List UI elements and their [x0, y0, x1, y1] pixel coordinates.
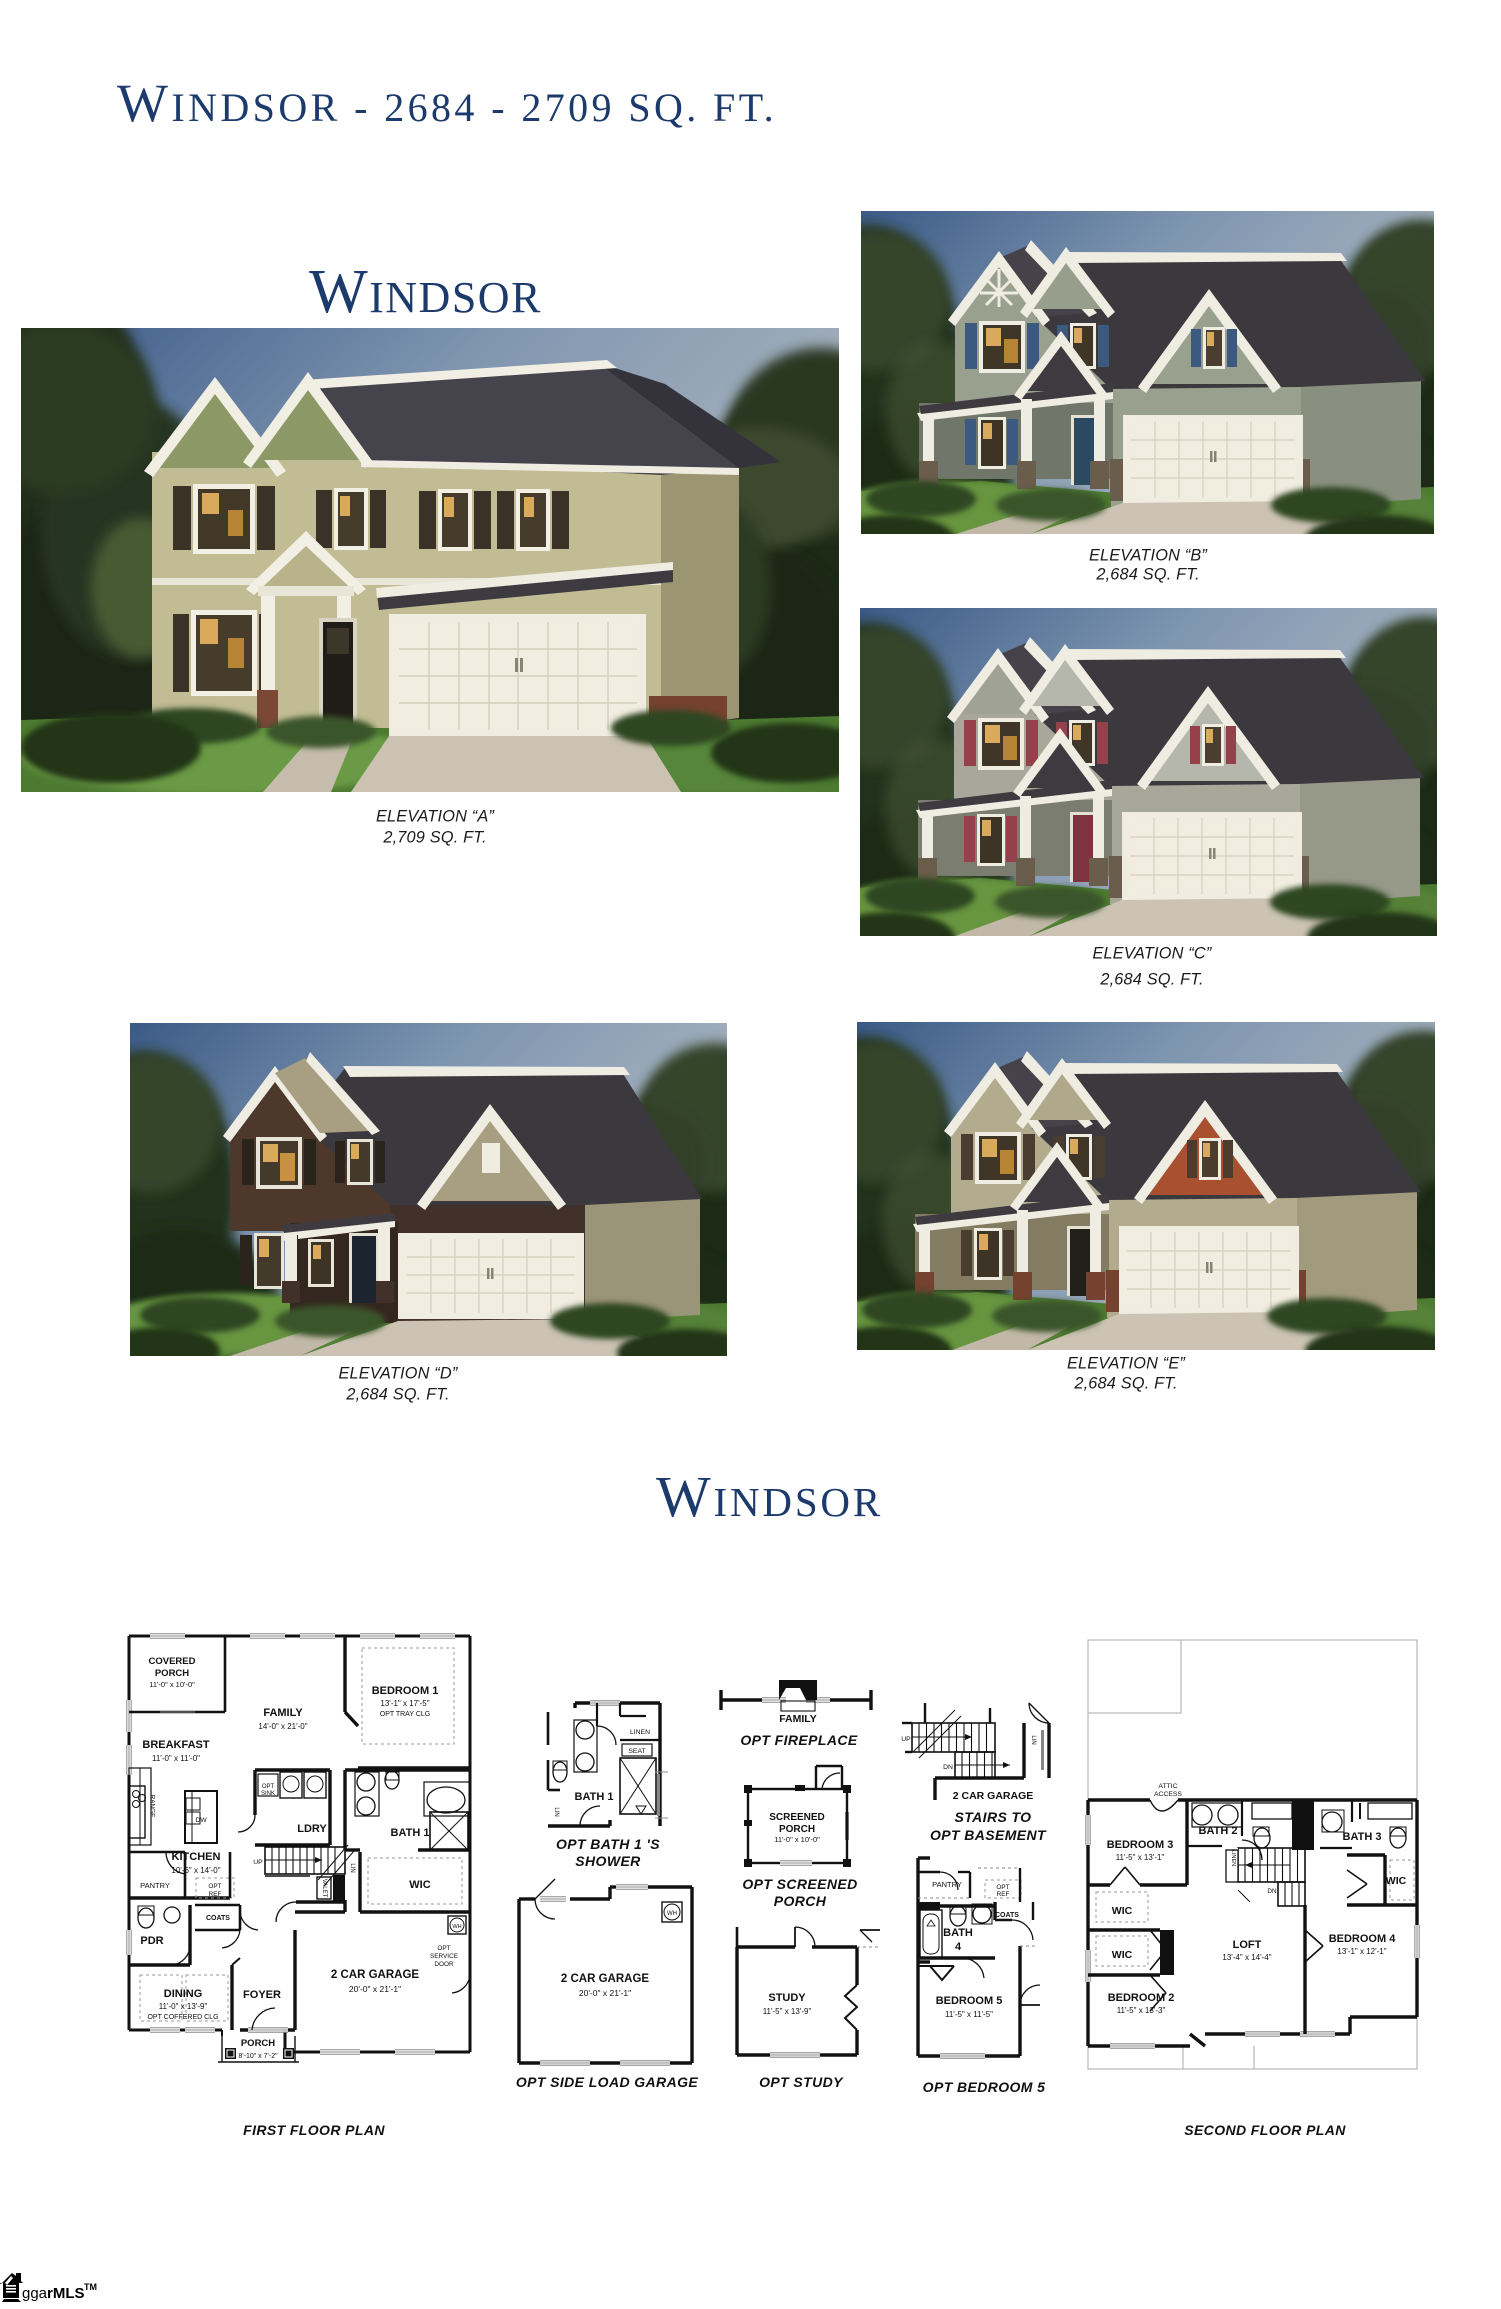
svg-text:OPT SIDE LOAD GARAGE: OPT SIDE LOAD GARAGE: [516, 2074, 698, 2090]
svg-text:LOFT: LOFT: [1233, 1939, 1262, 1951]
svg-text:LIN: LIN: [1030, 1735, 1036, 1744]
svg-text:COATS: COATS: [995, 1912, 1019, 1919]
svg-text:UP: UP: [253, 1859, 263, 1866]
svg-text:WIC: WIC: [1112, 1905, 1133, 1917]
svg-text:BATH: BATH: [943, 1927, 973, 1939]
svg-text:BEDROOM 4: BEDROOM 4: [1329, 1933, 1397, 1945]
svg-text:13'-1" x 17'-5": 13'-1" x 17'-5": [380, 1699, 429, 1708]
svg-text:2 CAR GARAGE: 2 CAR GARAGE: [331, 1969, 420, 1981]
svg-text:ACCESS: ACCESS: [1154, 1791, 1182, 1798]
svg-text:LINEN: LINEN: [630, 1729, 650, 1736]
svg-text:FAMILY: FAMILY: [263, 1707, 303, 1719]
svg-text:FIRST FLOOR PLAN: FIRST FLOOR PLAN: [243, 2122, 385, 2138]
svg-text:OPT: OPT: [996, 1884, 1009, 1891]
svg-text:13'-4" x 14'-4": 13'-4" x 14'-4": [1222, 1953, 1271, 1962]
svg-text:BEDROOM 1: BEDROOM 1: [372, 1685, 439, 1697]
svg-text:BEDROOM 2: BEDROOM 2: [1108, 1992, 1175, 2004]
svg-text:11'-0" x 13'-9": 11'-0" x 13'-9": [159, 2002, 208, 2011]
svg-text:UP: UP: [901, 1736, 911, 1743]
svg-text:BATH 3: BATH 3: [1343, 1831, 1382, 1843]
svg-text:OPT SCREENED: OPT SCREENED: [742, 1876, 857, 1892]
svg-text:13'-1" x 12'-1": 13'-1" x 12'-1": [1337, 1947, 1386, 1956]
svg-text:SEAT: SEAT: [628, 1748, 645, 1755]
svg-text:STAIRS TO: STAIRS TO: [955, 1809, 1032, 1825]
svg-text:20'-0" x 21'-1": 20'-0" x 21'-1": [349, 1984, 401, 1994]
svg-text:OPT COFFERED CLG: OPT COFFERED CLG: [147, 2014, 218, 2021]
svg-text:OPT TRAY CLG: OPT TRAY CLG: [380, 1711, 430, 1718]
svg-text:DOOR: DOOR: [434, 1961, 454, 1968]
svg-text:STUDY: STUDY: [768, 1992, 806, 2004]
svg-text:11'-0" x 10'-0": 11'-0" x 10'-0": [149, 1680, 195, 1689]
svg-text:PORCH: PORCH: [241, 2038, 275, 2049]
svg-text:COATS: COATS: [206, 1915, 230, 1922]
svg-text:BATH 1: BATH 1: [575, 1791, 614, 1803]
svg-text:LINEN: LINEN: [1230, 1850, 1236, 1866]
svg-text:BATH 2: BATH 2: [1199, 1825, 1238, 1837]
svg-text:OPT: OPT: [262, 1784, 275, 1790]
svg-text:11'-0" x 10'-0": 11'-0" x 10'-0": [774, 1835, 820, 1844]
svg-text:SERVICE: SERVICE: [430, 1953, 458, 1960]
svg-text:DW: DW: [195, 1817, 207, 1824]
svg-text:PORCH: PORCH: [774, 1893, 827, 1909]
svg-text:11'-5" x 13'-3": 11'-5" x 13'-3": [1117, 2006, 1166, 2015]
svg-text:SHOWER: SHOWER: [575, 1853, 641, 1869]
svg-text:11'-5" x 13'-9": 11'-5" x 13'-9": [763, 2007, 812, 2016]
svg-text:REF: REF: [209, 1891, 222, 1898]
svg-text:WH: WH: [667, 1911, 677, 1917]
svg-text:2 CAR GARAGE: 2 CAR GARAGE: [953, 1790, 1034, 1802]
svg-text:LDRY: LDRY: [297, 1823, 327, 1835]
svg-text:DN: DN: [1267, 1888, 1277, 1895]
svg-text:11'-0" x 11'-0": 11'-0" x 11'-0": [152, 1754, 200, 1763]
svg-text:WIC: WIC: [409, 1879, 430, 1891]
svg-text:PORCH: PORCH: [779, 1824, 815, 1835]
svg-text:4: 4: [955, 1941, 962, 1953]
svg-text:DN: DN: [943, 1764, 953, 1771]
svg-text:FOYER: FOYER: [243, 1989, 281, 2001]
svg-text:OPT BATH 1 'S: OPT BATH 1 'S: [556, 1836, 660, 1852]
svg-text:REF: REF: [997, 1891, 1010, 1898]
svg-text:WH: WH: [452, 1924, 461, 1930]
svg-text:20'-0" x 21'-1": 20'-0" x 21'-1": [579, 1988, 631, 1998]
svg-text:DINING: DINING: [164, 1988, 203, 2000]
svg-text:11'-5" x 11'-5": 11'-5" x 11'-5": [945, 2010, 993, 2019]
svg-text:LIN: LIN: [553, 1807, 559, 1816]
svg-text:WIC: WIC: [1112, 1949, 1133, 1961]
svg-text:14'-0" x 21'-0": 14'-0" x 21'-0": [258, 1722, 307, 1731]
svg-text:PORCH: PORCH: [155, 1668, 189, 1679]
svg-text:SECOND FLOOR PLAN: SECOND FLOOR PLAN: [1184, 2122, 1346, 2138]
svg-text:BATH 1: BATH 1: [391, 1827, 430, 1839]
svg-text:RANGE: RANGE: [149, 1795, 156, 1818]
svg-text:SINK: SINK: [261, 1791, 275, 1797]
svg-text:gga: gga: [22, 2285, 48, 2302]
svg-text:PANTRY: PANTRY: [140, 1881, 170, 1890]
svg-text:LIN: LIN: [349, 1863, 355, 1872]
svg-text:SCREENED: SCREENED: [769, 1812, 825, 1823]
svg-text:OPT BASEMENT: OPT BASEMENT: [930, 1827, 1047, 1843]
svg-text:COVERED: COVERED: [149, 1656, 196, 1667]
svg-text:BREAKFAST: BREAKFAST: [142, 1739, 210, 1751]
svg-text:PDR: PDR: [140, 1935, 163, 1947]
svg-text:10'-6" x 14'-0": 10'-6" x 14'-0": [171, 1866, 220, 1875]
svg-text:OPT BEDROOM 5: OPT BEDROOM 5: [923, 2079, 1046, 2095]
svg-text:ATTIC: ATTIC: [1158, 1783, 1177, 1790]
svg-text:11'-5" x 13'-1": 11'-5" x 13'-1": [1116, 1853, 1165, 1862]
svg-text:rMLS: rMLS: [47, 2285, 85, 2302]
svg-text:BEDROOM 3: BEDROOM 3: [1107, 1839, 1174, 1851]
svg-text:BEDROOM 5: BEDROOM 5: [936, 1995, 1003, 2007]
svg-text:WIC: WIC: [1386, 1875, 1407, 1887]
svg-text:OPT FIREPLACE: OPT FIREPLACE: [740, 1732, 857, 1748]
svg-text:TM: TM: [84, 2282, 97, 2292]
svg-text:VALET: VALET: [321, 1879, 327, 1898]
svg-text:OPT: OPT: [437, 1945, 450, 1952]
svg-text:OPT: OPT: [208, 1883, 221, 1890]
svg-text:FAMILY: FAMILY: [779, 1713, 817, 1725]
svg-text:2 CAR GARAGE: 2 CAR GARAGE: [561, 1973, 650, 1985]
svg-text:OPT STUDY: OPT STUDY: [759, 2074, 844, 2090]
svg-text:8'-10" x 7'-2": 8'-10" x 7'-2": [238, 2053, 278, 2060]
